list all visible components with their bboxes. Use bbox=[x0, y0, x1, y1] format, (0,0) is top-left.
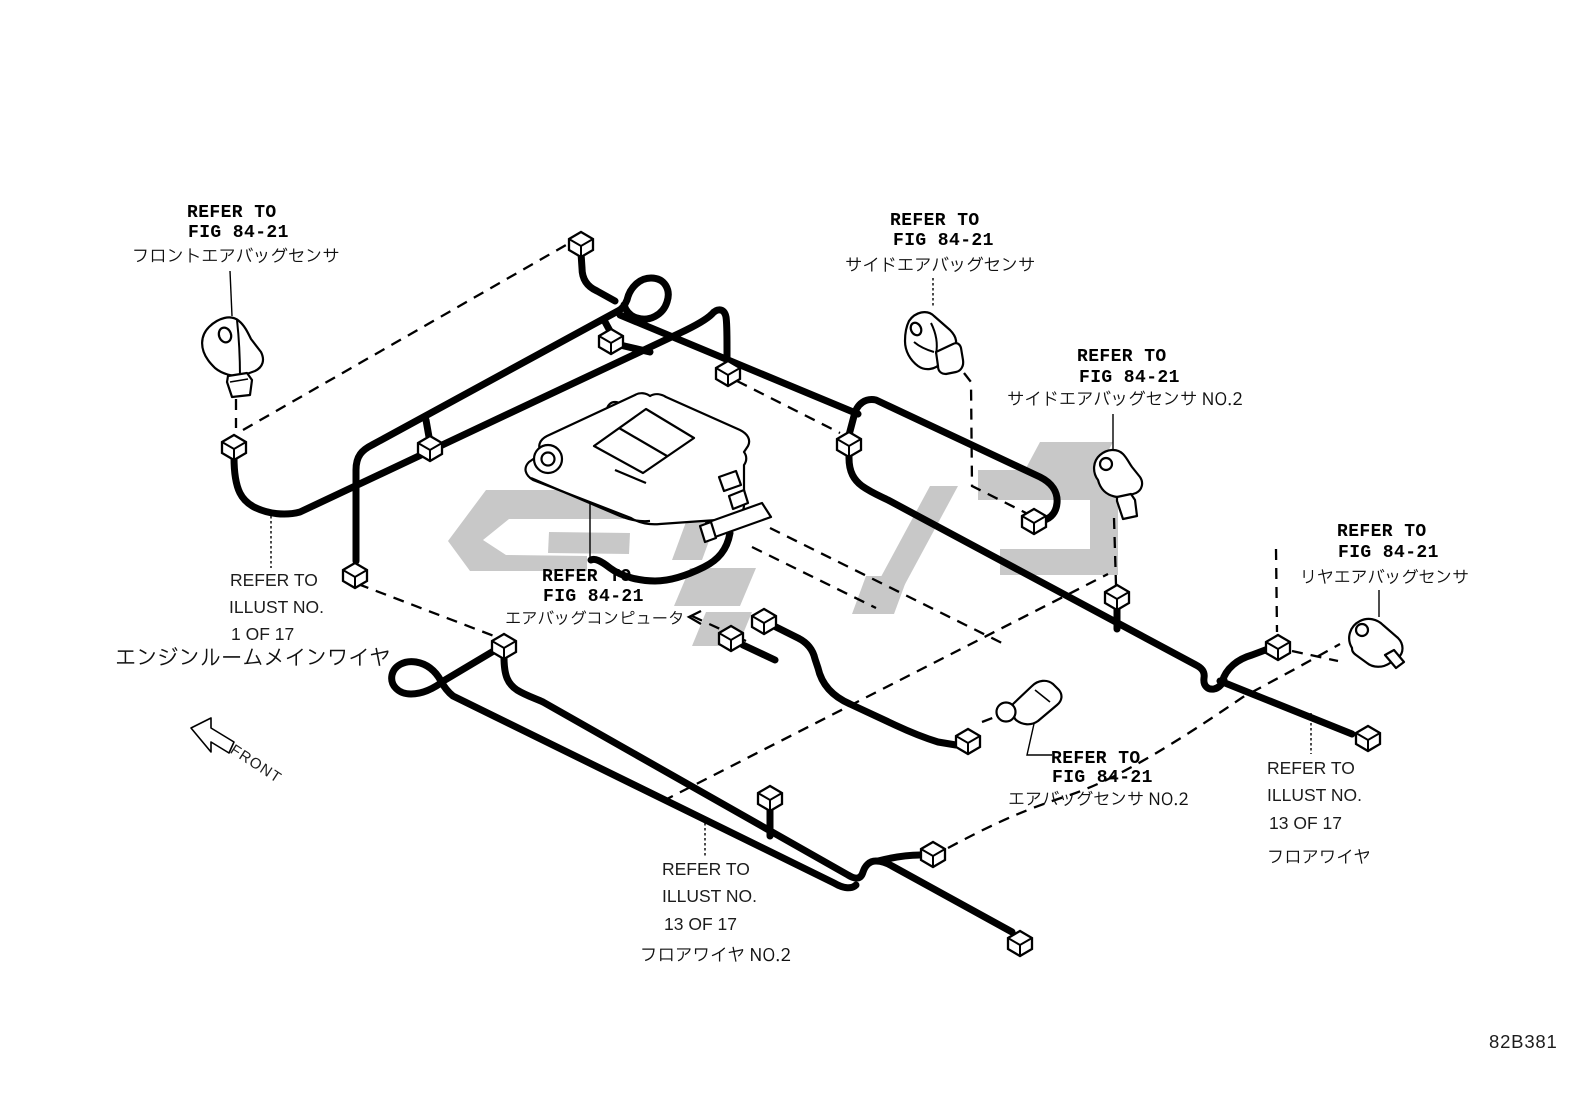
svg-text:FIG 84-21: FIG 84-21 bbox=[543, 587, 644, 607]
svg-text:REFER TO: REFER TO bbox=[542, 567, 632, 587]
svg-text:REFER TO: REFER TO bbox=[890, 211, 980, 231]
svg-text:ILLUST NO.: ILLUST NO. bbox=[1267, 785, 1362, 805]
svg-text:REFER TO: REFER TO bbox=[662, 859, 750, 879]
svg-text:ILLUST NO.: ILLUST NO. bbox=[229, 597, 324, 617]
svg-text:REFER TO: REFER TO bbox=[1077, 347, 1167, 367]
svg-text:REFER TO: REFER TO bbox=[187, 203, 277, 223]
svg-text:FIG 84-21: FIG 84-21 bbox=[1079, 368, 1180, 388]
svg-text:REFER TO: REFER TO bbox=[230, 570, 318, 590]
svg-text:REFER TO: REFER TO bbox=[1337, 522, 1427, 542]
svg-text:FIG 84-21: FIG 84-21 bbox=[893, 231, 994, 251]
svg-text:REFER TO: REFER TO bbox=[1051, 749, 1141, 769]
svg-text:REFER TO: REFER TO bbox=[1267, 758, 1355, 778]
svg-text:FIG 84-21: FIG 84-21 bbox=[1052, 768, 1153, 788]
svg-text:13 OF 17: 13 OF 17 bbox=[664, 914, 737, 934]
svg-text:82B381: 82B381 bbox=[1489, 1031, 1558, 1052]
svg-text:ILLUST NO.: ILLUST NO. bbox=[662, 886, 757, 906]
svg-text:13 OF 17: 13 OF 17 bbox=[1269, 813, 1342, 833]
svg-text:1 OF 17: 1 OF 17 bbox=[231, 624, 294, 644]
svg-text:FIG 84-21: FIG 84-21 bbox=[188, 223, 289, 243]
svg-text:FIG 84-21: FIG 84-21 bbox=[1338, 543, 1439, 563]
